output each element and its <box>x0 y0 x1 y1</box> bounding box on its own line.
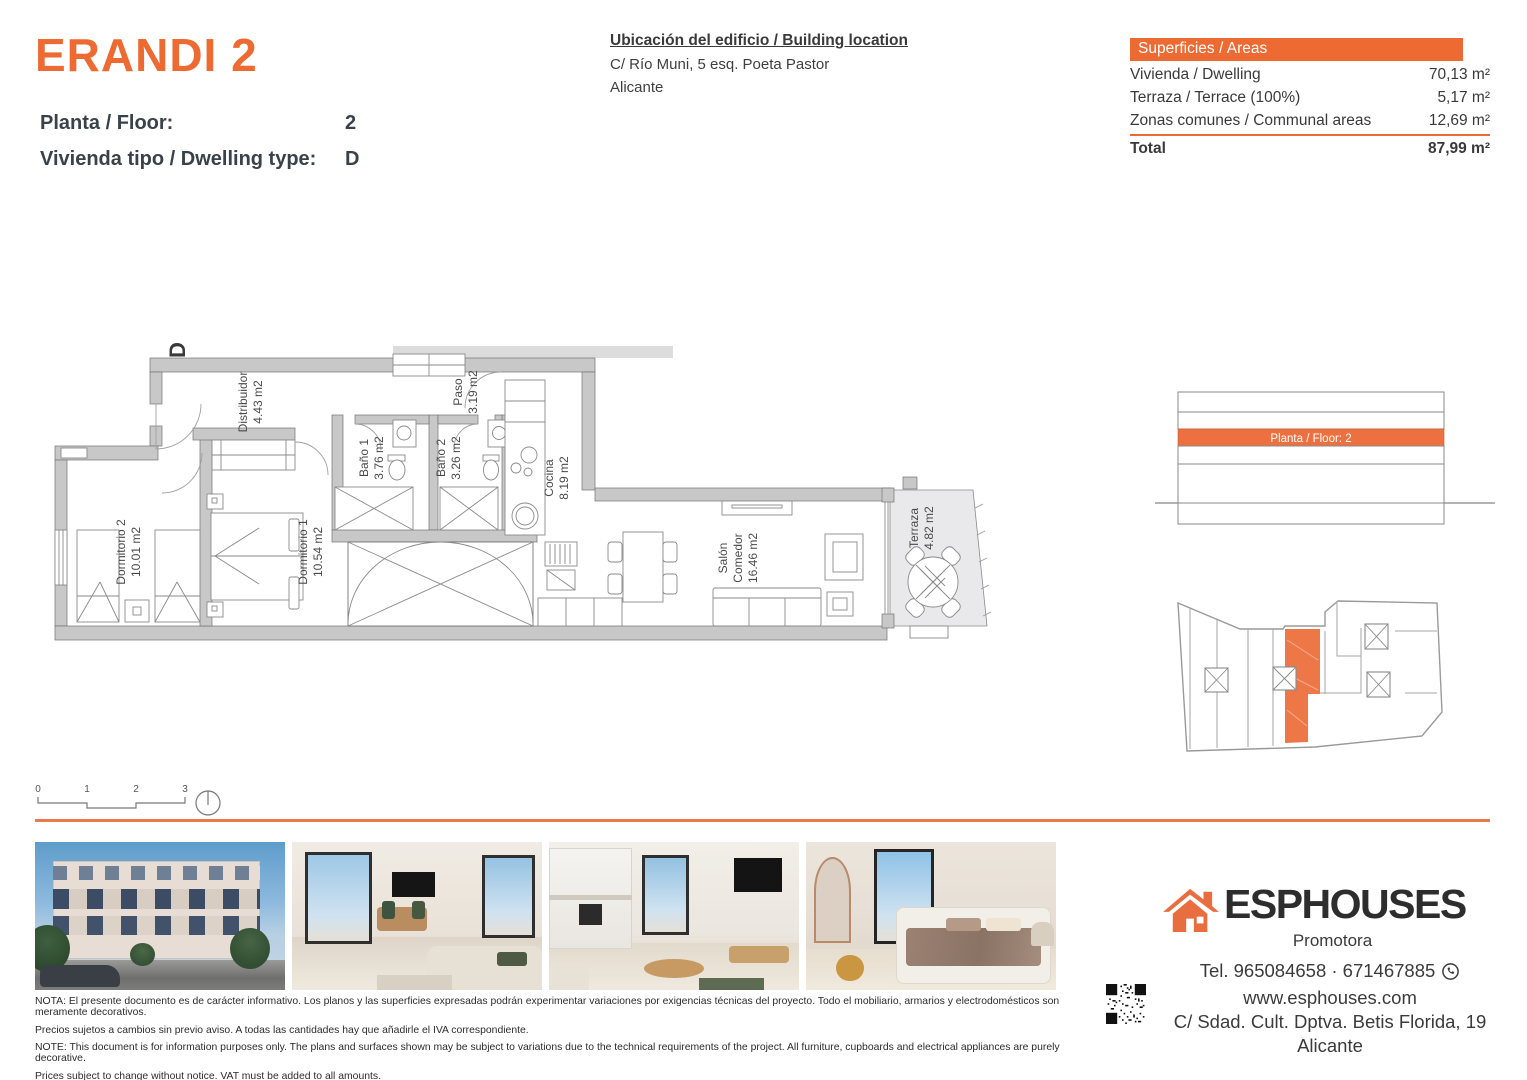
scale-bar: 0 1 2 3 <box>30 780 230 820</box>
room-area-cocina: 8.19 m2 <box>557 456 571 500</box>
table-row: Zonas comunes / Communal areas 12,69 m² <box>1130 107 1490 130</box>
qr-code <box>1106 984 1146 1024</box>
legal-note-en-1: NOTE: This document is for information p… <box>35 1042 1103 1064</box>
legal-note-en-2: Prices subject to change without notice.… <box>35 1071 1103 1080</box>
project-title: ERANDI 2 <box>35 28 258 82</box>
total-value: 87,99 m² <box>1428 140 1490 158</box>
room-area-terraza: 4.82 m2 <box>922 506 936 550</box>
photo-kitchen-living-room <box>549 842 799 990</box>
scale-tick: 1 <box>84 784 90 795</box>
room-label-bano2: Baño 2 <box>434 439 448 477</box>
location-street: C/ Río Muni, 5 esq. Poeta Pastor <box>610 56 829 73</box>
areas-table: Superficies / Areas Vivienda / Dwelling … <box>1130 38 1490 158</box>
esphouses-house-icon <box>1162 885 1220 933</box>
room-label-dormitorio2: Dormitorio 2 <box>114 519 128 585</box>
dwelling-type-label: Vivienda tipo / Dwelling type: <box>40 148 316 170</box>
room-area-paso: 3.19 m2 <box>466 370 480 414</box>
area-label: Zonas comunes / Communal areas <box>1130 112 1371 130</box>
dwelling-marker: D <box>165 342 190 358</box>
room-label-distribuidor: Distribuidor <box>236 372 250 433</box>
table-total-row: Total 87,99 m² <box>1130 134 1490 158</box>
brochure-page: ERANDI 2 Planta / Floor: 2 Vivienda tipo… <box>0 0 1527 1080</box>
address-line2: Alicante <box>1145 1035 1515 1057</box>
divider-line <box>35 819 1490 822</box>
legal-note-es-2: Precios sujetos a cambios sin previo avi… <box>35 1025 1103 1036</box>
room-area-dormitorio1: 10.54 m2 <box>311 527 325 577</box>
legal-note-es-1: NOTA: El presente documento es de caráct… <box>35 996 1103 1018</box>
room-area-bano2: 3.26 m2 <box>449 436 463 480</box>
whatsapp-icon <box>1441 962 1460 981</box>
brand-tagline: Promotora <box>1160 931 1505 951</box>
areas-table-header: Superficies / Areas <box>1130 38 1463 61</box>
table-row: Terraza / Terrace (100%) 5,17 m² <box>1130 84 1490 107</box>
address-line1: C/ Sdad. Cult. Dptva. Betis Florida, 19 <box>1145 1011 1515 1033</box>
room-area-distribuidor: 4.43 m2 <box>251 380 265 424</box>
photo-building-exterior <box>35 842 285 990</box>
phone-number: Tel. 965084658 · 671467885 <box>1200 960 1436 982</box>
floor-plan: D Distribuidor 4.43 m2 Paso 3.19 m2 Baño… <box>25 330 1015 675</box>
room-label-salon: Salón <box>716 543 730 574</box>
floor-row: Planta / Floor: <box>40 112 173 135</box>
area-value: 5,17 m² <box>1437 89 1490 107</box>
brand-name: ESPHOUSES <box>1224 881 1466 928</box>
room-label-comedor: Comedor <box>731 533 745 582</box>
room-label-terraza: Terraza <box>907 508 921 548</box>
scale-tick: 2 <box>133 784 139 795</box>
room-label-cocina: Cocina <box>542 459 556 497</box>
north-arrow-icon <box>196 791 220 815</box>
room-area-bano1: 3.76 m2 <box>372 436 386 480</box>
area-label: Vivienda / Dwelling <box>1130 66 1261 84</box>
room-area-dormitorio2: 10.01 m2 <box>129 527 143 577</box>
dwelling-type-value: D <box>345 148 359 171</box>
phone-line: Tel. 965084658 · 671467885 <box>1145 960 1515 982</box>
photo-living-dining-room <box>292 842 542 990</box>
area-value: 12,69 m² <box>1429 112 1490 130</box>
photo-bedroom <box>806 842 1056 990</box>
room-label-paso: Paso <box>451 378 465 406</box>
room-label-dormitorio1: Dormitorio 1 <box>296 519 310 585</box>
total-label: Total <box>1130 140 1166 158</box>
location-city: Alicante <box>610 79 663 96</box>
site-plan-diagram <box>1165 598 1460 763</box>
area-value: 70,13 m² <box>1429 66 1490 84</box>
scale-tick: 3 <box>182 784 188 795</box>
legal-notes: NOTA: El presente documento es de caráct… <box>35 996 1103 1080</box>
floor-label: Planta / Floor: <box>40 112 173 134</box>
room-label-bano1: Baño 1 <box>357 439 371 477</box>
building-elevation-diagram: Planta / Floor: 2 <box>1155 390 1495 530</box>
website[interactable]: www.esphouses.com <box>1145 987 1515 1009</box>
area-label: Terraza / Terrace (100%) <box>1130 89 1300 107</box>
dwelling-type-row: Vivienda tipo / Dwelling type: <box>40 148 316 171</box>
highlighted-floor-label: Planta / Floor: 2 <box>1270 433 1351 445</box>
floor-value: 2 <box>345 112 356 135</box>
table-row: Vivienda / Dwelling 70,13 m² <box>1130 61 1490 84</box>
location-title: Ubicación del edificio / Building locati… <box>610 32 908 50</box>
room-area-salon: 16.46 m2 <box>746 533 760 583</box>
scale-tick: 0 <box>35 784 41 795</box>
